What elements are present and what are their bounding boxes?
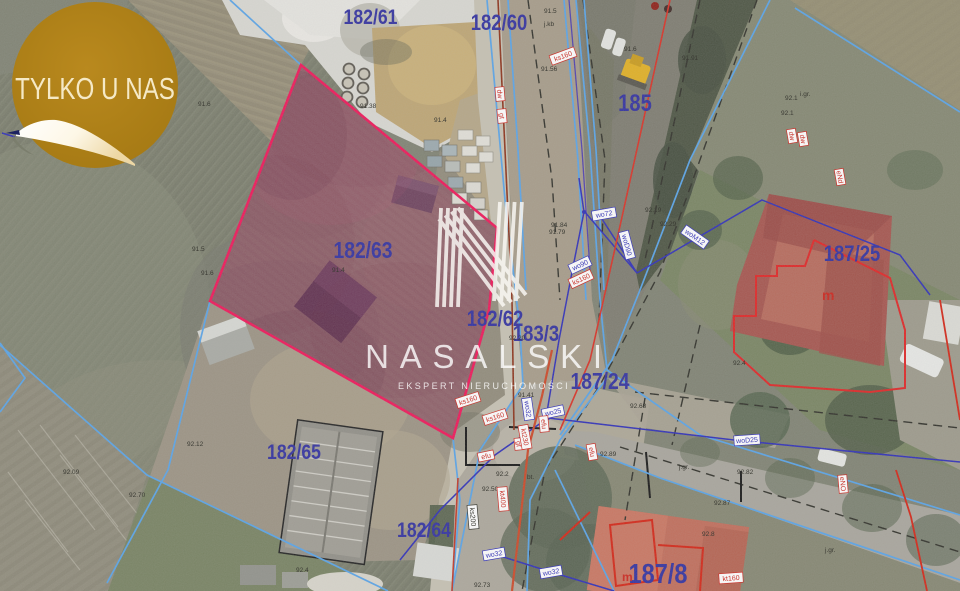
svg-text:EKSPERT NIERUCHOMOŚCI: EKSPERT NIERUCHOMOŚCI	[398, 380, 570, 391]
svg-text:NASALSKI: NASALSKI	[365, 338, 613, 375]
svg-text:TYLKO U NAS: TYLKO U NAS	[15, 71, 175, 106]
